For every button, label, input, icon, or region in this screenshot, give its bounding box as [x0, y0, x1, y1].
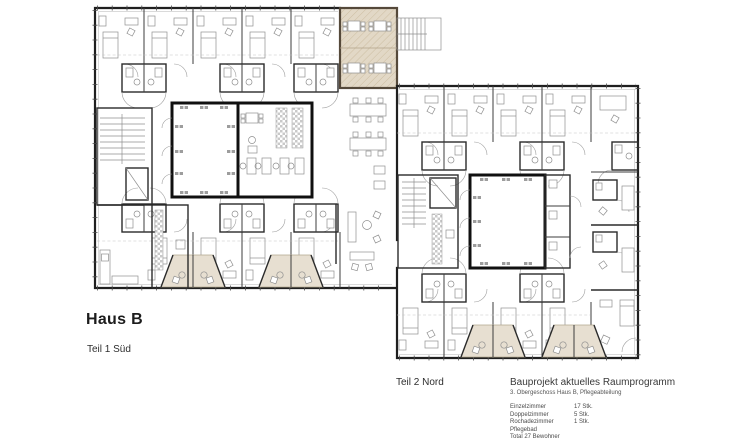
drawing-sheet: Haus B Teil 1 Süd Teil 2 Nord Bauprojekt… [0, 0, 750, 443]
legend-value [574, 427, 614, 435]
bedrooms-sued-top [97, 8, 340, 108]
wing-nord [397, 86, 638, 358]
stairwell-nord [398, 175, 458, 268]
legend-label: Pflegebad [510, 427, 574, 435]
legend-items: Einzelzimmer 17 Stk. Doppelzimmer 5 Stk.… [510, 404, 730, 442]
legend-row: Pflegebad [510, 427, 730, 435]
courtyard-room-b [238, 103, 312, 197]
courtyard-room-a [162, 103, 238, 197]
bedrooms-nord-top [397, 86, 638, 186]
legend-subtitle: 3. Obergeschoss Haus B, Pflegeabteilung [510, 390, 730, 396]
legend-row: Total 27 Bewohner [510, 434, 730, 442]
part-label-sued: Teil 1 Süd [87, 344, 131, 355]
legend-title: Bauprojekt aktuelles Raumprogramm [510, 377, 730, 388]
bedrooms-nord-bottom [397, 258, 606, 358]
legend-value: 17 Stk. [574, 404, 614, 412]
legend-row: Doppelzimmer 5 Stk. [510, 412, 730, 420]
dining-area [348, 98, 386, 271]
bedrooms-sued-bottom [97, 188, 340, 288]
courtyard-room-nord [460, 175, 581, 268]
legend-block: Bauprojekt aktuelles Raumprogramm 3. Obe… [510, 377, 730, 442]
legend-value [574, 434, 614, 442]
legend-label: Einzelzimmer [510, 404, 574, 412]
highlighted-room [340, 8, 397, 88]
stairwell-sued [97, 108, 152, 284]
exterior-stairs [397, 18, 441, 50]
legend-label: Total 27 Bewohner [510, 434, 574, 442]
legend-label: Rochadezimmer [510, 419, 574, 427]
legend-label: Doppelzimmer [510, 412, 574, 420]
legend-row: Einzelzimmer 17 Stk. [510, 404, 730, 412]
legend-value: 5 Stk. [574, 412, 614, 420]
legend-row: Rochadezimmer 1 Stk. [510, 419, 730, 427]
building-title: Haus B [86, 311, 143, 329]
legend-value: 1 Stk. [574, 419, 614, 427]
part-label-nord: Teil 2 Nord [396, 377, 444, 388]
bedrooms-nord-east [591, 172, 638, 352]
